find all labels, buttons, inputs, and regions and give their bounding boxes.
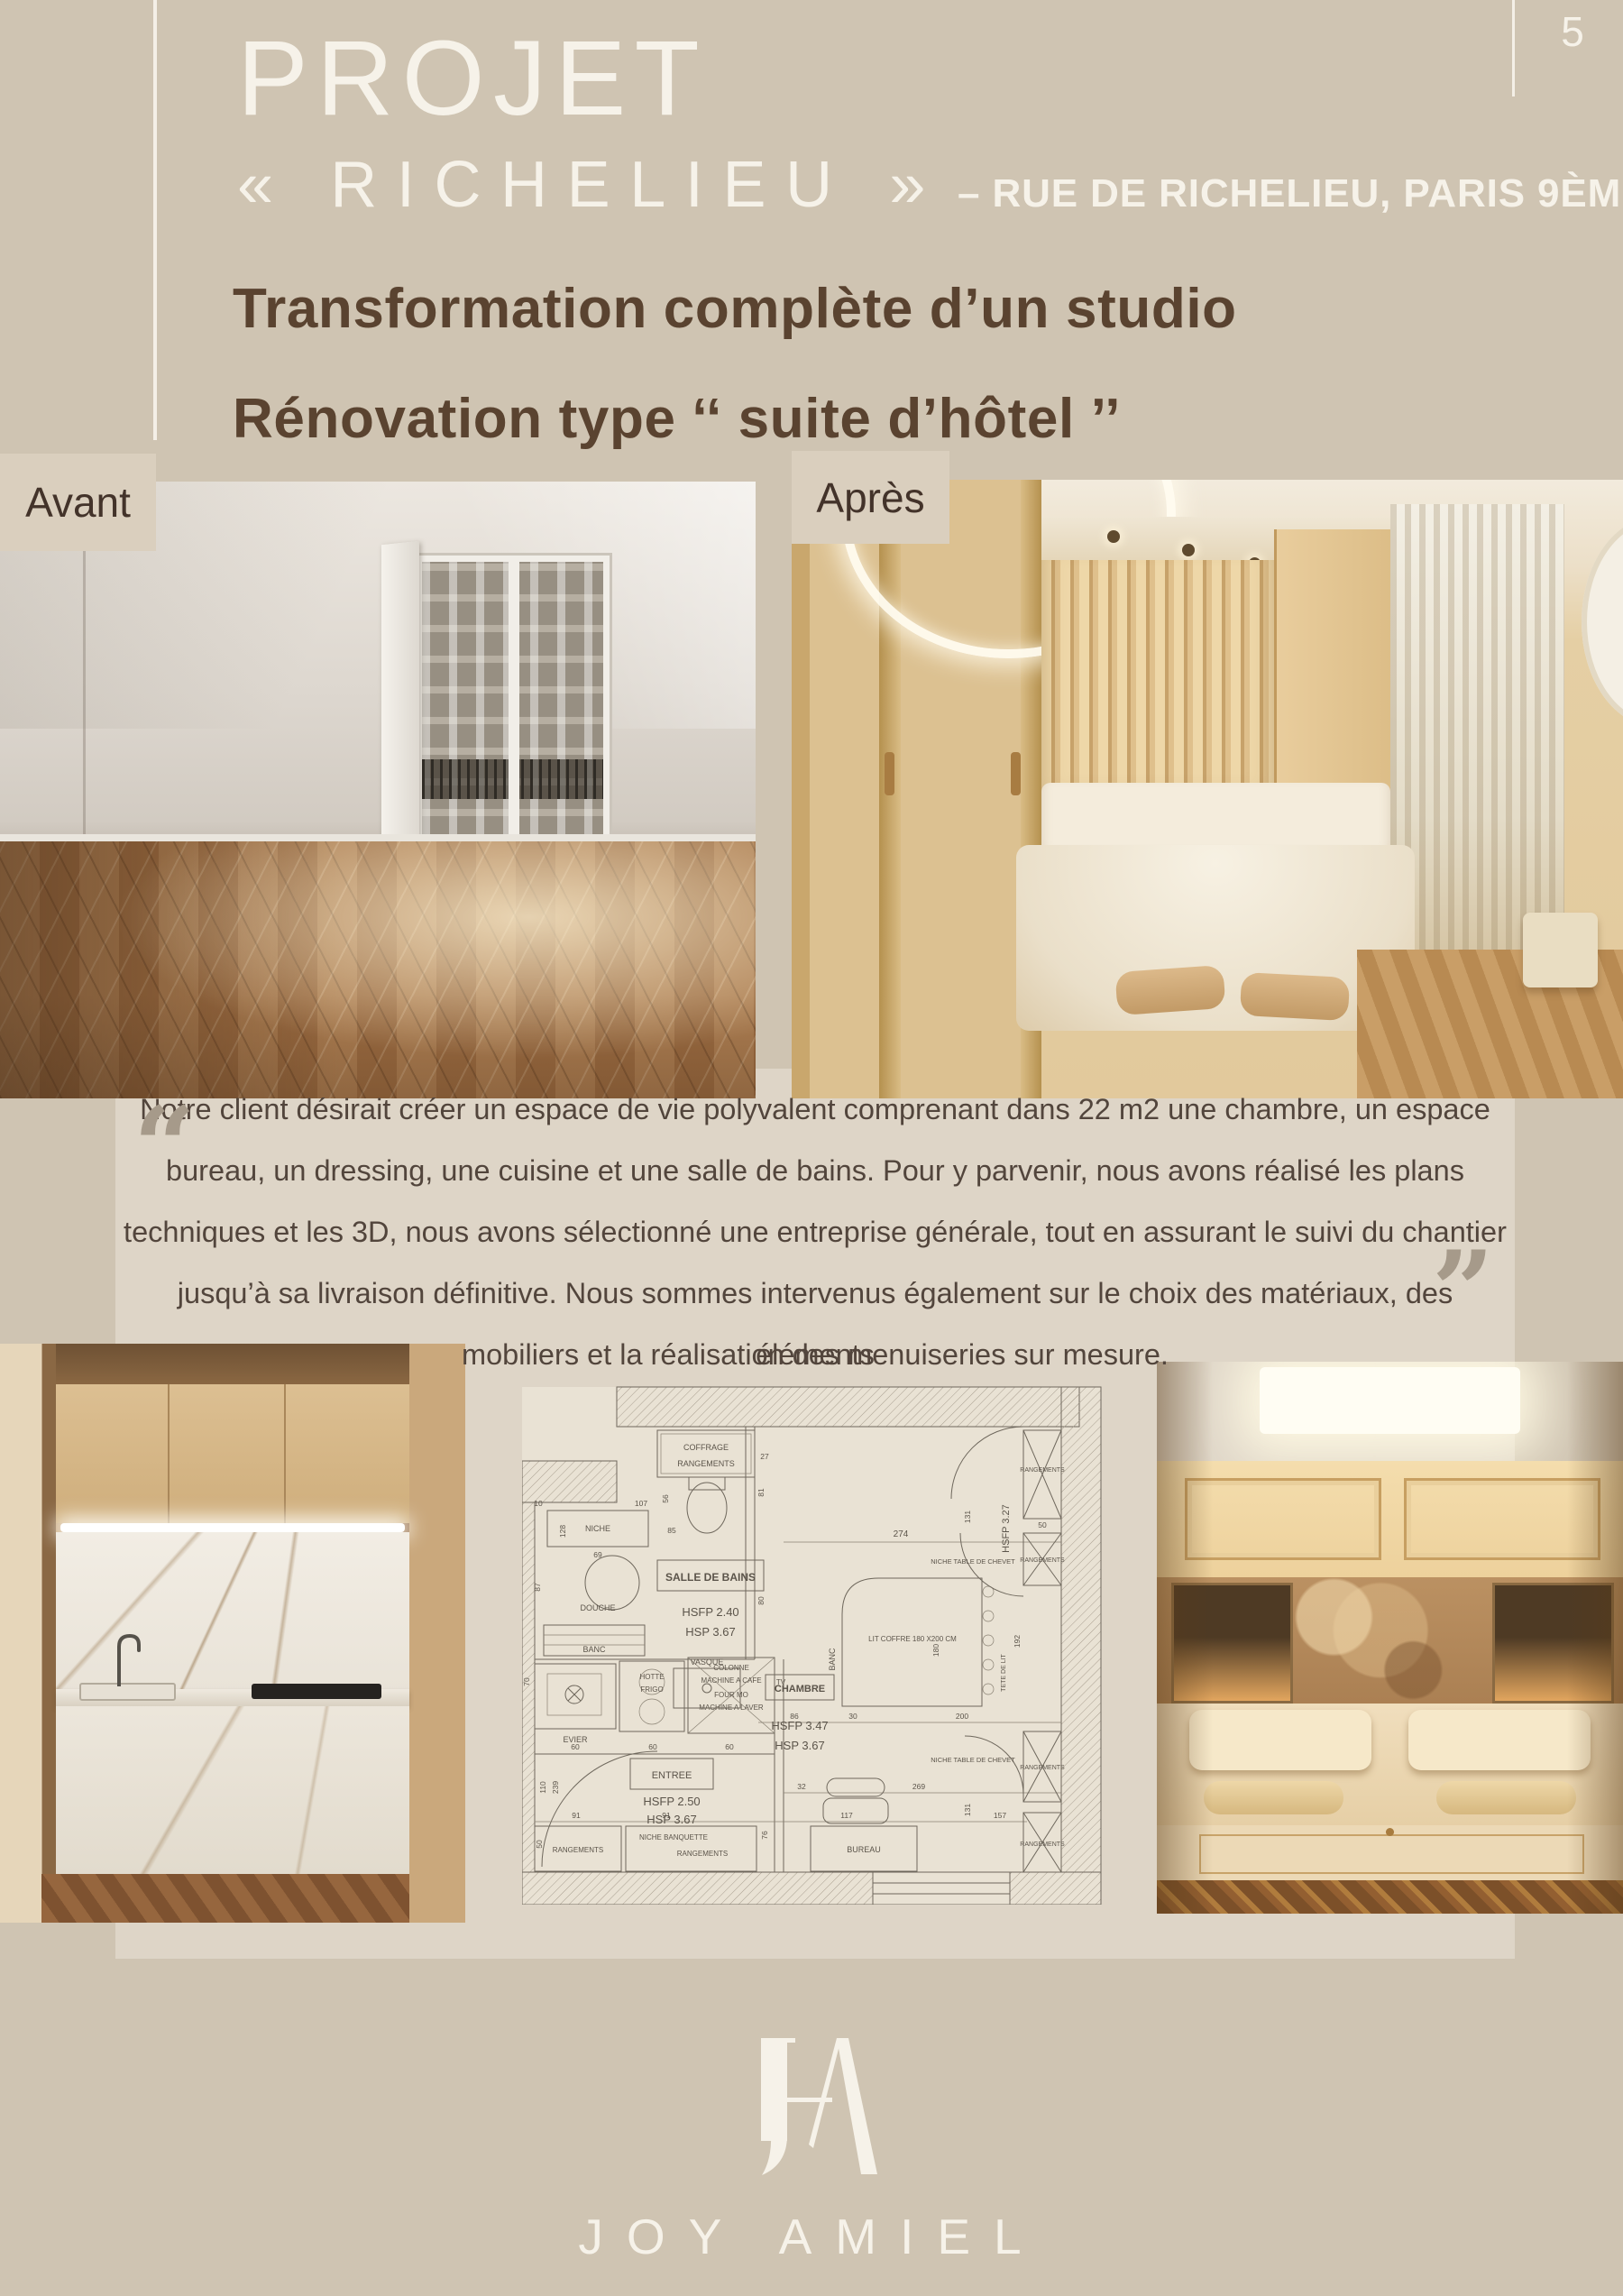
header-vertical-rule [153, 0, 157, 440]
page-title: PROJET [237, 25, 708, 132]
brand-monogram-icon [759, 2038, 878, 2178]
plan-label: HSP 3.67 [646, 1813, 696, 1826]
plan-label: BANC [582, 1645, 606, 1654]
plan-dim: 157 [994, 1811, 1006, 1820]
close-quote-icon: ” [1432, 1237, 1494, 1345]
plan-dim: 85 [667, 1526, 676, 1535]
plan-label: MACHINE A CAFE [701, 1676, 761, 1685]
before-label: Avant [25, 478, 131, 527]
after-photo-slat-panel [1041, 560, 1274, 820]
plan-label: RANGEMENTS [1020, 1557, 1065, 1564]
kitchen-floor [41, 1874, 409, 1923]
kitchen-upper-cabinets [56, 1384, 409, 1523]
plan-dim: 200 [956, 1712, 968, 1721]
after-photo-bolster-1 [1114, 965, 1225, 1015]
plan-label: NICHE [585, 1524, 610, 1533]
plan-label: NICHE BANQUETTE [639, 1833, 708, 1841]
plan-label: FOUR MO [714, 1691, 748, 1699]
plan-label: HSP 3.67 [685, 1625, 735, 1639]
plan-label: BUREAU [847, 1845, 881, 1854]
plan-dim: 60 [648, 1742, 657, 1751]
kitchen-cooktop [252, 1684, 381, 1699]
plan-dim: 269 [912, 1782, 925, 1791]
plan-dim: 80 [756, 1596, 766, 1605]
wardrobe-handle-1 [885, 752, 894, 795]
plan-label: SALLE DE BAINS [665, 1571, 756, 1584]
plan-label: COFFRAGE [683, 1443, 729, 1452]
plan-dim: 60 [725, 1742, 734, 1751]
after-photo [792, 480, 1623, 1098]
portfolio-page: { "page": { "number": "5" }, "header": {… [0, 0, 1623, 2296]
after-photo-stool [1523, 913, 1598, 987]
quote-line: bureau, un dressing, une cuisine et une … [115, 1140, 1515, 1201]
kitchen-led-strip [60, 1523, 405, 1532]
plan-label: RANGEMENTS [553, 1846, 603, 1854]
wardrobe-handle-2 [1011, 752, 1021, 795]
nook-side-shadows [1157, 1362, 1623, 1914]
project-name: « RICHELIEU » [237, 149, 945, 221]
plan-dim: 131 [963, 1511, 972, 1523]
kitchen-photo [0, 1344, 465, 1923]
plan-dim: 239 [551, 1781, 560, 1794]
plan-dim: 91 [662, 1811, 671, 1820]
plan-window [873, 1872, 1010, 1905]
plan-dim: 180 [931, 1644, 940, 1657]
plan-dim: 86 [790, 1712, 799, 1721]
plan-label: NICHE TABLE DE CHEVET [931, 1756, 1015, 1764]
before-photo-baseboard [0, 834, 756, 841]
cabinet-seam-1 [168, 1384, 170, 1523]
plan-label: DOUCHE [580, 1603, 615, 1612]
before-photo-floor-shading [0, 840, 756, 1098]
plan-dim: 91 [572, 1811, 581, 1820]
plan-dim: 110 [538, 1781, 547, 1794]
plan-dim: 192 [1013, 1635, 1022, 1648]
plan-dim: 32 [797, 1782, 806, 1791]
quote-line: mobiliers et la réalisation des menuiser… [115, 1324, 1515, 1385]
plan-dim: 76 [760, 1831, 769, 1840]
kitchen-lower-front [56, 1706, 409, 1874]
project-address: – RUE DE RICHELIEU, PARIS 9ÈME [958, 171, 1623, 216]
plan-label: RANGEMENTS [1020, 1841, 1065, 1848]
after-label: Après [816, 473, 924, 522]
plan-label: MACHINE A LAVER [699, 1704, 764, 1712]
plan-label: HSP 3.67 [775, 1739, 824, 1752]
cabinet-seam-2 [284, 1384, 286, 1523]
before-photo-open-sash [381, 541, 419, 878]
open-quote-icon: “ [133, 1093, 196, 1201]
headline: Transformation complète d’un studio Réno… [233, 254, 1237, 474]
plan-label: COLONNE [713, 1664, 749, 1672]
plan-label: HOTTE [639, 1673, 664, 1681]
kitchen-faucet-icon [112, 1630, 148, 1686]
plan-label: TETE DE LIT [1001, 1653, 1007, 1691]
plan-dim: 274 [894, 1529, 909, 1539]
plan-dim: 131 [963, 1804, 972, 1816]
quote-line: Notre client désirait créer un espace de… [115, 1079, 1515, 1140]
plan-dim: 69 [593, 1550, 602, 1559]
plan-label: HSFP 3.47 [771, 1719, 828, 1732]
project-subtitle: « RICHELIEU »– RUE DE RICHELIEU, PARIS 9… [237, 148, 1623, 222]
plan-dim: 128 [558, 1525, 567, 1538]
plan-dim: 87 [533, 1583, 542, 1592]
plan-dim: 56 [661, 1494, 670, 1503]
after-photo-window [1390, 504, 1565, 950]
before-photo-window [416, 556, 610, 877]
plan-label: HSFP 2.50 [643, 1795, 700, 1808]
headline-line2: Rénovation type ‘‘ suite d’hôtel ’’ [233, 364, 1237, 474]
plan-label: RANGEMENTS [677, 1459, 735, 1468]
window-mullion [509, 562, 519, 870]
plan-dim: 27 [760, 1452, 769, 1461]
after-label-box: Après [792, 451, 949, 544]
plan-dim: 117 [840, 1811, 853, 1820]
after-photo-bolster-2 [1240, 972, 1350, 1021]
brand-name: JOY AMIEL [0, 2208, 1623, 2265]
floor-plan: COFFRAGE RANGEMENTS NICHE DOUCHE BANC SA… [522, 1371, 1118, 1905]
plan-label: RANGEMENTS [677, 1850, 728, 1858]
plan-label: HSFP 2.40 [682, 1605, 738, 1619]
plan-dim: 81 [756, 1488, 766, 1497]
plan-label: NICHE TABLE DE CHEVET [931, 1557, 1015, 1566]
quote-line: jusqu’à sa livraison définitive. Nous so… [115, 1263, 1515, 1324]
plan-dim: 70 [522, 1677, 531, 1686]
plan-dim: 30 [848, 1712, 857, 1721]
kitchen-backsplash [56, 1532, 409, 1688]
plan-label: LIT COFFRE 180 X200 CM [868, 1635, 957, 1643]
headline-line1: Transformation complète d’un studio [233, 254, 1237, 364]
plan-dim: 107 [635, 1499, 647, 1508]
plan-label: RANGEMENTS [1020, 1765, 1065, 1771]
before-label-box: Avant [0, 454, 156, 551]
plan-label: ENTREE [652, 1770, 692, 1781]
pagenum-vertical-rule [1512, 0, 1515, 96]
plan-label: FRIGO [640, 1685, 663, 1694]
before-photo [0, 482, 756, 1098]
plan-dim: 50 [1038, 1520, 1047, 1529]
page-number: 5 [1545, 7, 1600, 56]
plan-label: BANC [828, 1648, 837, 1671]
bed-nook-photo [1157, 1362, 1623, 1914]
plan-label: CHAMBRE [775, 1684, 825, 1694]
plan-label: RANGEMENTS [1020, 1467, 1065, 1474]
plan-dim: 10 [534, 1499, 543, 1508]
wardrobe-frame-left [792, 480, 810, 1098]
plan-label: HSFP 3.27 [1001, 1504, 1012, 1553]
plan-dim: 60 [571, 1742, 580, 1751]
quote-line: techniques et les 3D, nous avons sélecti… [115, 1201, 1515, 1263]
quote-block: Notre client désirait créer un espace de… [115, 1079, 1515, 1385]
plan-dim: 50 [535, 1840, 544, 1849]
